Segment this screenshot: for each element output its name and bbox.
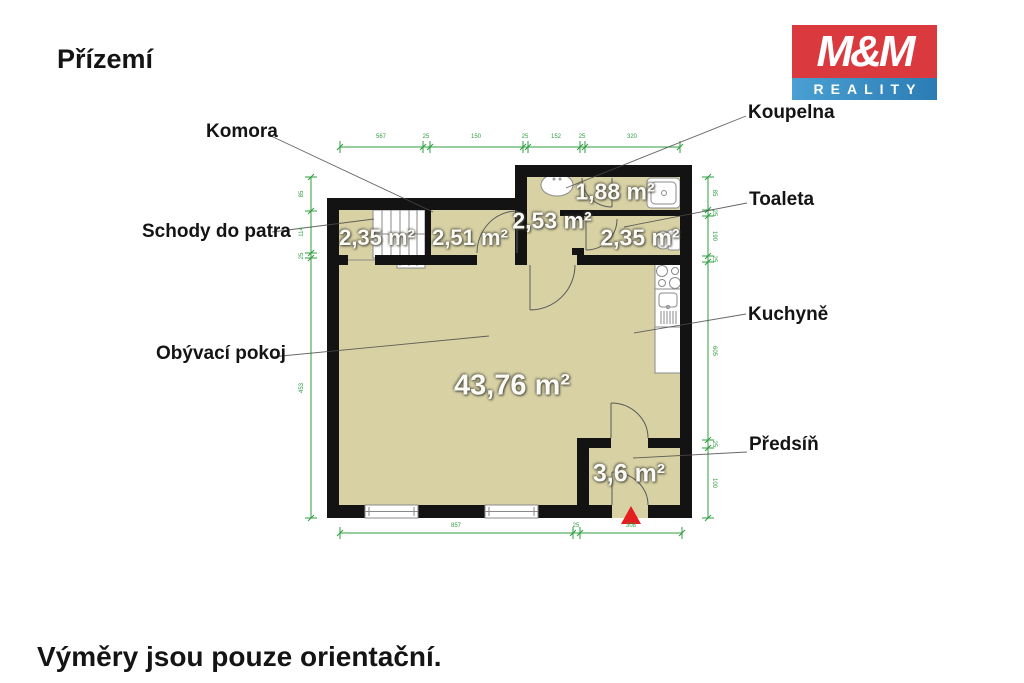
page-title: Přízemí — [57, 44, 153, 75]
dim-right-2: 190 — [711, 231, 717, 241]
dim-top-6: 320 — [627, 134, 637, 140]
dim-bottom-1: 25 — [573, 523, 580, 529]
dim-top-3: 25 — [522, 134, 529, 140]
dim-top-4: 152 — [551, 134, 561, 140]
logo-reality-text: REALITY — [807, 82, 923, 96]
label-predsin: Předsíň — [749, 434, 819, 456]
dim-left-2: 25 — [299, 253, 305, 260]
label-kuchyne: Kuchyně — [748, 304, 828, 326]
label-toaleta: Toaleta — [749, 189, 814, 211]
dim-top-5: 25 — [579, 134, 586, 140]
dim-right-5: 25 — [711, 441, 717, 448]
dim-right-6: 100 — [711, 478, 717, 488]
dim-bottom-2: 308 — [626, 523, 636, 529]
label-komora: Komora — [206, 121, 278, 143]
dim-bottom-0: 857 — [451, 523, 461, 529]
area-obyvaci: 43,76 m² — [454, 370, 570, 403]
logo-top-band: M&M — [792, 25, 937, 78]
kitchen-counter — [655, 263, 681, 373]
dim-left-1: 114 — [299, 227, 305, 237]
area-predsin: 3,6 m² — [593, 460, 665, 489]
dim-top-2: 150 — [471, 134, 481, 140]
dim-left-3: 453 — [299, 383, 305, 393]
logo-mm-text: M&M — [816, 30, 912, 74]
dim-top-1: 25 — [423, 134, 430, 140]
area-komora: 2,51 m² — [432, 225, 508, 251]
dim-right-4: 605 — [711, 346, 717, 356]
disclaimer-text: Výměry jsou pouze orientační. — [37, 641, 442, 673]
dim-top-0: 567 — [376, 134, 386, 140]
dim-right-1: 25 — [711, 210, 717, 217]
floorplan-drawing — [0, 0, 1024, 683]
dim-right-3: 25 — [711, 256, 717, 263]
dim-left-0: 85 — [299, 191, 305, 198]
floorplan-page: Přízemí Výměry jsou pouze orientační. M&… — [0, 0, 1024, 683]
dim-right-0: 85 — [711, 190, 717, 197]
area-schody: 2,35 m² — [339, 225, 415, 251]
mm-reality-logo: M&M REALITY — [792, 25, 937, 100]
label-obyvaci-pokoj: Obývací pokoj — [156, 343, 286, 365]
label-schody-do-patra: Schody do patra — [142, 221, 291, 243]
area-koupelna: 1,88 m² — [575, 179, 654, 206]
area-toaleta: 2,35 m² — [600, 225, 679, 252]
label-koupelna: Koupelna — [748, 102, 835, 124]
logo-reality-band: REALITY — [792, 78, 937, 100]
area-chodba: 2,53 m² — [512, 208, 591, 235]
